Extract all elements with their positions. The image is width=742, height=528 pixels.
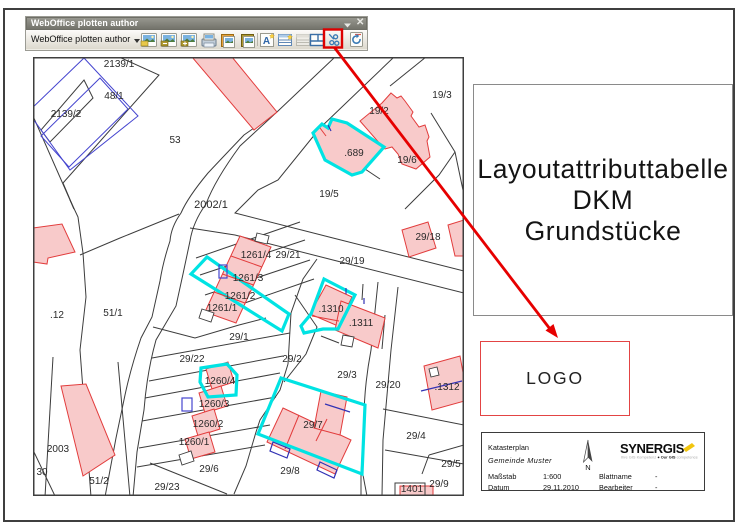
- svg-text:1260/3: 1260/3: [199, 399, 230, 410]
- svg-text:19/3: 19/3: [432, 90, 452, 101]
- svg-text:29/6: 29/6: [199, 464, 219, 475]
- svg-text:51/2: 51/2: [89, 476, 109, 487]
- svg-text:29/7: 29/7: [303, 420, 323, 431]
- svg-text:1261/1: 1261/1: [207, 303, 238, 314]
- svg-text:2139/2: 2139/2: [51, 109, 82, 120]
- svg-text:29/2: 29/2: [282, 354, 302, 365]
- svg-text:2002/1: 2002/1: [194, 199, 228, 211]
- svg-text:29/20: 29/20: [375, 380, 400, 391]
- svg-text:48/1: 48/1: [104, 91, 124, 102]
- svg-text:29/23: 29/23: [154, 482, 179, 493]
- svg-text:29/8: 29/8: [280, 466, 300, 477]
- svg-text:29/3: 29/3: [337, 370, 357, 381]
- svg-text:29/21: 29/21: [275, 250, 300, 261]
- svg-text:.12: .12: [50, 310, 64, 321]
- svg-text:.1310: .1310: [318, 304, 343, 315]
- svg-text:2003: 2003: [47, 444, 70, 455]
- svg-text:29/22: 29/22: [179, 354, 204, 365]
- svg-text:1260/1: 1260/1: [179, 437, 210, 448]
- svg-text:1261/3: 1261/3: [233, 273, 264, 284]
- svg-text:N: N: [585, 463, 590, 472]
- svg-text:19/5: 19/5: [319, 189, 339, 200]
- svg-text:.689: .689: [344, 148, 364, 159]
- svg-text:2139/1: 2139/1: [104, 59, 135, 70]
- svg-text:29/9: 29/9: [429, 479, 449, 490]
- svg-text:1260/2: 1260/2: [193, 419, 224, 430]
- svg-text:1261/4: 1261/4: [241, 250, 272, 261]
- svg-text:1260/4: 1260/4: [205, 376, 236, 387]
- svg-text:19/2: 19/2: [369, 106, 389, 117]
- svg-text:1261/2: 1261/2: [225, 291, 256, 302]
- svg-text:51/1: 51/1: [103, 308, 123, 319]
- svg-text:29/18: 29/18: [415, 232, 440, 243]
- svg-text:19/6: 19/6: [397, 155, 417, 166]
- svg-text:29/4: 29/4: [406, 431, 426, 442]
- svg-text:1401: 1401: [401, 484, 424, 495]
- svg-text:29/5: 29/5: [441, 459, 461, 470]
- svg-text:.1311: .1311: [349, 318, 374, 329]
- svg-text:Ihre GIS Kompetenz ● Our GIS c: Ihre GIS Kompetenz ● Our GIS competence: [621, 455, 698, 460]
- svg-text:30: 30: [36, 467, 48, 478]
- svg-text:53: 53: [169, 135, 181, 146]
- svg-text:29/19: 29/19: [339, 256, 364, 267]
- svg-text:.1312: .1312: [434, 382, 459, 393]
- svg-text:A: A: [263, 36, 270, 47]
- svg-text:29/1: 29/1: [229, 332, 249, 343]
